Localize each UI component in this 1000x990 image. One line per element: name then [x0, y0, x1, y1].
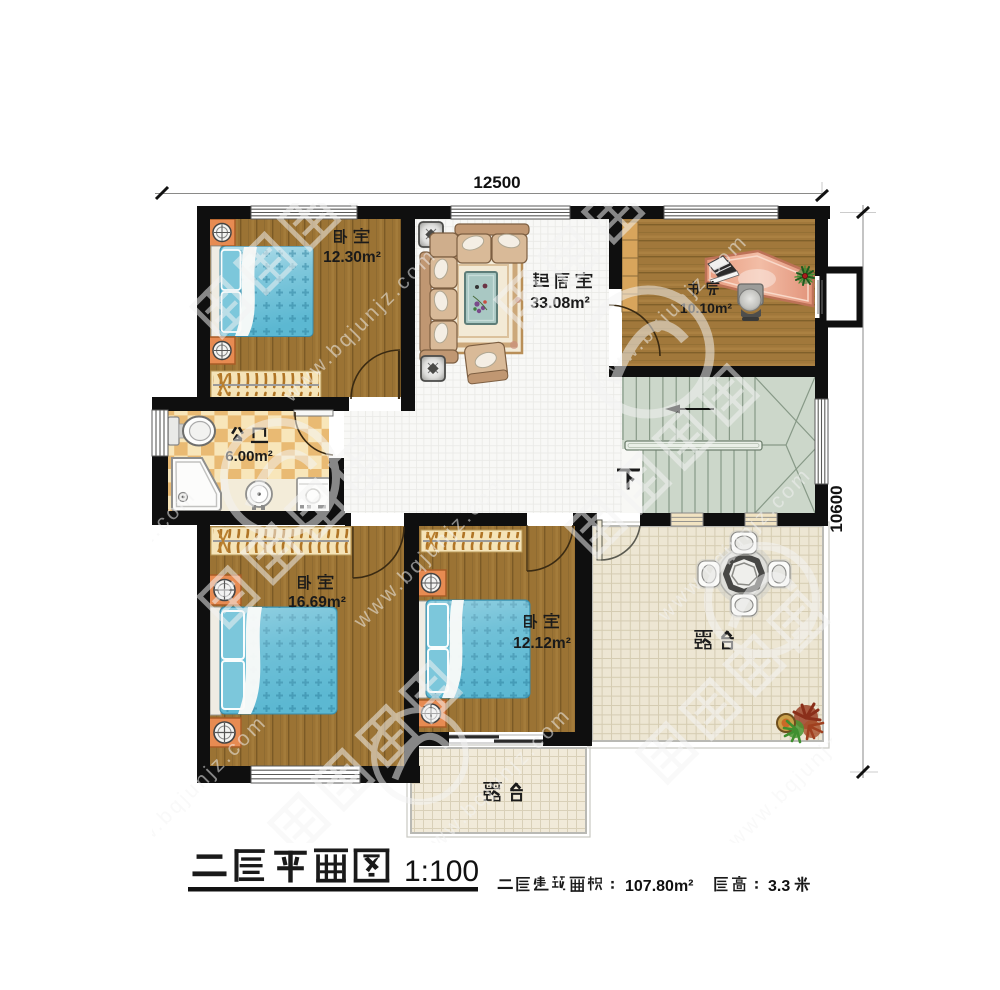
svg-text:3.3: 3.3	[768, 878, 790, 895]
svg-text:12500: 12500	[473, 173, 520, 192]
svg-text:12.12m²: 12.12m²	[513, 635, 571, 652]
svg-text:10600: 10600	[827, 485, 846, 532]
svg-text:107.80m²: 107.80m²	[625, 878, 694, 895]
svg-text:16.69m²: 16.69m²	[288, 594, 346, 611]
svg-text:12.30m²: 12.30m²	[323, 249, 381, 266]
svg-text:1:100: 1:100	[404, 855, 479, 888]
